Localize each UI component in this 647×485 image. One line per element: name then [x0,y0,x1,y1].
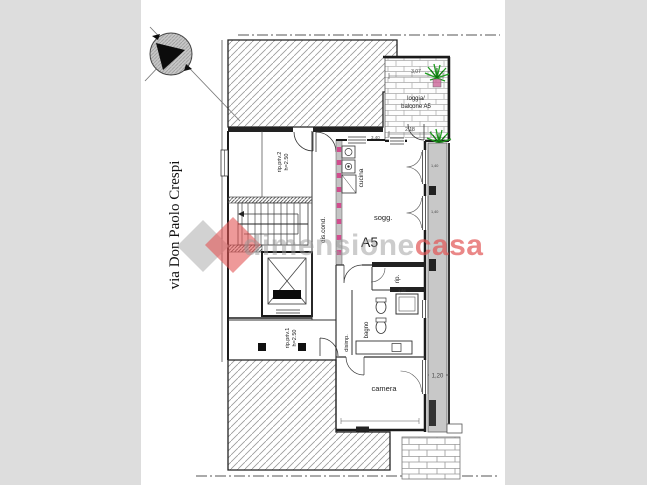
room-label-soggiorno: sogg. [374,213,392,222]
room-label-loggia: loggia/ [407,96,425,102]
svg-text:balcone A5: balcone A5 [401,104,431,110]
svg-text:h=2.50: h=2.50 [292,330,298,347]
dim-kitchen: 3,40 [371,135,380,140]
street-name: via Don Paolo Crespi [167,161,183,290]
room-label-bagno: bagno [364,321,370,338]
floor-plan-image: via Don Paolo Crespi 3,07 loggia/ balcon… [0,0,647,485]
dim-window-b: 1,40 [431,210,438,214]
dim-balcony: 1,20 [432,374,444,380]
room-label-rip: rip. [395,275,401,284]
floor-plan-svg: via Don Paolo Crespi 3,07 loggia/ balcon… [0,0,647,485]
dim-loggia-inner: 2,18 [405,127,415,133]
dim-loggia-width: 3,07 [411,69,421,75]
dim-window-a: 1,40 [431,164,438,168]
step [447,424,462,433]
bidet-icon [376,321,386,334]
bathtub-icon [356,341,412,354]
room-label-camera: camera [371,384,397,393]
watermark-text-red: casa [415,229,484,262]
svg-text:dimensionecasa: dimensionecasa [243,229,483,262]
bath-window [422,300,429,318]
toilet-icon [376,301,386,314]
room-label-disimp: disimp. [344,334,350,352]
svg-text:h=2.50: h=2.50 [284,154,290,171]
loggia: 3,07 loggia/ balcone A5 2,18 [383,57,451,152]
room-label-rip-priv-1: rip.priv.1 [285,328,291,349]
room-label-cucina: cucina [358,168,365,187]
room-label-rip-priv-2: rip.priv.2 [277,152,283,173]
dim-shower: 1,84 [398,288,407,293]
watermark-text-gray: dimensione [243,229,415,262]
